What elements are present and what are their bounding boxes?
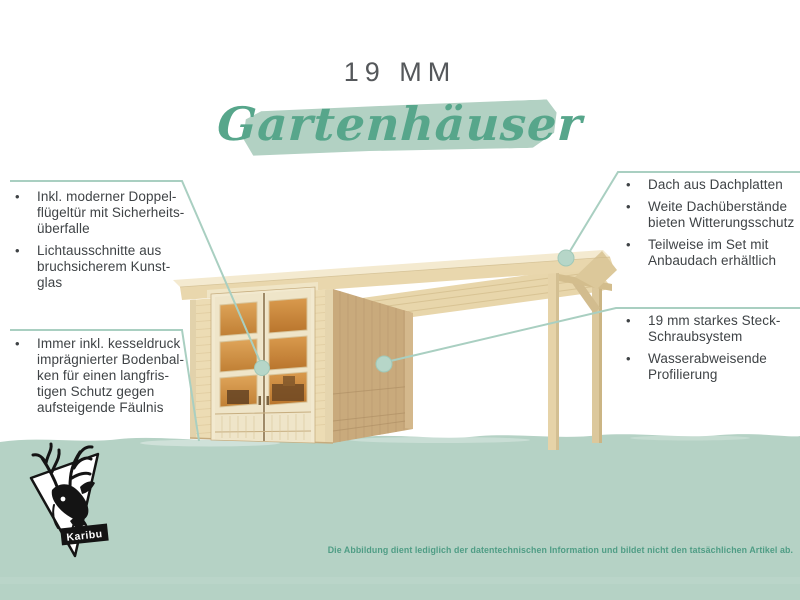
list-item: • Weite Dachüberstände bieten Witterungs…	[620, 199, 800, 231]
size-label: 19 MM	[0, 57, 800, 88]
callout-dot-wall	[376, 356, 392, 372]
callout-dot-door	[255, 361, 270, 376]
list-item: • Inkl. moderner Doppel- flügeltür mit S…	[10, 189, 192, 237]
callout-panel-top-right: • Dach aus Dachplatten • Weite Dachübers…	[620, 177, 800, 275]
page-title-script: Gartenhäuser	[0, 97, 800, 151]
list-item: • Wasserabweisende Profilierung	[620, 351, 800, 383]
side-wall	[333, 289, 413, 443]
bullet-icon: •	[620, 177, 648, 193]
callout-dot-roof	[558, 250, 574, 266]
infographic-page: Karibu 19 MM Gartenhäuser • Inkl. modern…	[0, 0, 800, 600]
callout-text: Weite Dachüberstände bieten Witterungssc…	[648, 199, 800, 231]
roof-post-front	[548, 270, 559, 450]
door-handle	[267, 396, 270, 405]
list-item: • Immer inkl. kesseldruck imprägnierter …	[10, 336, 192, 416]
roof-post-rear	[572, 280, 602, 443]
bullet-icon: •	[620, 313, 648, 345]
callout-text: Teilweise im Set mit Anbaudach erhältlic…	[648, 237, 800, 269]
door-handle	[259, 396, 262, 405]
disclaimer-text: Die Abbildung dient lediglich der datent…	[193, 545, 793, 555]
bullet-icon: •	[620, 199, 648, 231]
callout-text: Inkl. moderner Doppel- flügeltür mit Sic…	[37, 189, 192, 237]
garden-shed-illustration	[173, 250, 617, 450]
list-item: • 19 mm starkes Steck- Schraubsystem	[620, 313, 800, 345]
bullet-icon: •	[10, 243, 37, 291]
callout-panel-bottom-right: • 19 mm starkes Steck- Schraubsystem • W…	[620, 313, 800, 389]
bullet-icon: •	[620, 351, 648, 383]
green-band	[0, 434, 800, 600]
callout-text: Wasserabweisende Profilierung	[648, 351, 800, 383]
callout-panel-top-left: • Inkl. moderner Doppel- flügeltür mit S…	[10, 189, 192, 297]
illustration-layer: Karibu	[0, 0, 800, 600]
bullet-icon: •	[620, 237, 648, 269]
callout-text: Dach aus Dachplatten	[648, 177, 800, 193]
callout-panel-bottom-left: • Immer inkl. kesseldruck imprägnierter …	[10, 336, 192, 422]
list-item: • Lichtausschnitte aus bruchsicherem Kun…	[10, 243, 192, 291]
bullet-icon: •	[10, 189, 37, 237]
callout-text: Lichtausschnitte aus bruchsicherem Kunst…	[37, 243, 192, 291]
list-item: • Teilweise im Set mit Anbaudach erhältl…	[620, 237, 800, 269]
callout-text: Immer inkl. kesseldruck imprägnierter Bo…	[37, 336, 192, 416]
bullet-icon: •	[10, 336, 37, 416]
list-item: • Dach aus Dachplatten	[620, 177, 800, 193]
callout-text: 19 mm starkes Steck- Schraubsystem	[648, 313, 800, 345]
